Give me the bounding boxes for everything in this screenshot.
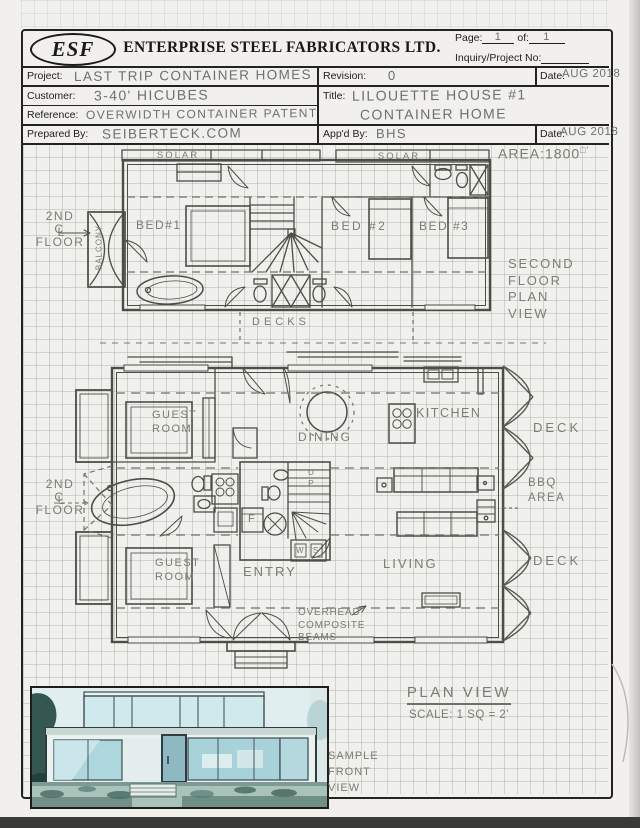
title-value-line2: CONTAINER HOME bbox=[360, 105, 507, 122]
title-value-line1: LILOUETTE HOUSE #1 bbox=[352, 86, 527, 104]
bbq-area-label: BBQ AREA bbox=[528, 476, 565, 506]
centerline-symbol: CL bbox=[54, 223, 65, 236]
fridge-label: F bbox=[248, 513, 256, 525]
prepared-by-label: Prepared By: bbox=[27, 128, 88, 140]
decks-label: DECKS bbox=[252, 316, 310, 328]
plan-view-title: PLAN VIEW bbox=[398, 684, 520, 701]
guest-room-bottom-label: GUEST ROOM bbox=[155, 556, 200, 584]
project-label: Project: bbox=[27, 70, 63, 82]
stairs-up-label: UP bbox=[306, 467, 316, 489]
first-floor-marker: 2ND CL FLOOR bbox=[28, 478, 92, 517]
page-edge-curl bbox=[612, 664, 628, 762]
solar-label-right: SOLAR bbox=[368, 151, 430, 162]
plan-scale: SCALE: 1 SQ = 2' bbox=[398, 709, 520, 721]
guest-room-top-label: GUEST ROOM bbox=[152, 408, 197, 436]
date-value: AUG 2018 bbox=[562, 68, 621, 81]
second-floor-caption: SECOND FLOOR PLAN VIEW bbox=[508, 256, 574, 322]
esf-logo-text: ESF bbox=[52, 37, 95, 61]
container-house-photo-art bbox=[32, 688, 327, 807]
beams-note: OVERHEAD COMPOSITE BEAMS bbox=[298, 607, 365, 645]
date2-value: AUG 2018 bbox=[560, 126, 619, 139]
page-line: Page:1 of:1 bbox=[455, 31, 565, 44]
bed1-label: BED#1 bbox=[136, 218, 182, 232]
prepared-by-value: SEIBERTECK.COM bbox=[102, 125, 242, 141]
balcony-label: BALCONY bbox=[95, 211, 104, 285]
sample-front-view-label: SAMPLE FRONT VIEW bbox=[328, 748, 379, 796]
bed3-label: BED #3 bbox=[419, 219, 469, 233]
titleblock-line bbox=[22, 66, 609, 68]
company-name: ENTERPRISE STEEL FABRICATORS LTD. bbox=[118, 39, 446, 57]
title-label: Title: bbox=[323, 90, 345, 102]
kitchen-label: KITCHEN bbox=[416, 406, 481, 420]
reference-value: OVERWIDTH CONTAINER PATENT bbox=[86, 106, 318, 122]
solar-label-left: SOLAR bbox=[146, 150, 210, 161]
titleblock-divider bbox=[535, 66, 537, 85]
living-label: LIVING bbox=[383, 556, 438, 571]
esf-logo: ESF bbox=[30, 33, 116, 66]
dining-label: DINING bbox=[298, 430, 352, 444]
titleblock-divider bbox=[535, 124, 537, 143]
page-right-edge bbox=[629, 0, 640, 828]
page-total-value: 1 bbox=[543, 31, 551, 43]
area-value: AREA:1800 bbox=[498, 146, 580, 162]
page-value: 1 bbox=[495, 31, 503, 43]
approved-by-label: App'd By: bbox=[323, 128, 368, 140]
sample-front-view-photo bbox=[30, 686, 329, 809]
drawing-sheet: ESF ENTERPRISE STEEL FABRICATORS LTD. Pa… bbox=[0, 0, 640, 828]
titleblock-line bbox=[22, 124, 609, 126]
washer-label: W bbox=[296, 546, 305, 555]
page-label: Page: bbox=[455, 32, 482, 44]
customer-value: 3-40' HICUBES bbox=[94, 86, 209, 103]
of-label: of: bbox=[517, 32, 529, 44]
sink-label: S bbox=[313, 546, 320, 555]
deck-lower-label: DECK bbox=[533, 553, 581, 568]
approved-by-value: BHS bbox=[376, 126, 407, 141]
bed2-label: BED #2 bbox=[331, 219, 387, 233]
inquiry-label: Inquiry/Project No: bbox=[455, 52, 541, 64]
area-note: AREA:1800□' bbox=[498, 145, 589, 162]
revision-label: Revision: bbox=[323, 70, 366, 82]
revision-value: 0 bbox=[388, 68, 397, 83]
centerline-symbol: CL bbox=[54, 491, 65, 504]
top-margin-grid bbox=[21, 0, 609, 28]
customer-label: Customer: bbox=[27, 90, 75, 102]
marker-2nd: 2ND bbox=[46, 209, 75, 223]
inquiry-line: Inquiry/Project No: bbox=[455, 51, 589, 64]
reference-label: Reference: bbox=[27, 109, 78, 121]
area-unit: □' bbox=[580, 145, 589, 155]
deck-upper-label: DECK bbox=[533, 420, 581, 435]
second-floor-marker: 2ND CL FLOOR bbox=[28, 210, 92, 249]
project-value: LAST TRIP CONTAINER HOMES bbox=[74, 67, 312, 84]
scan-bottom-edge bbox=[0, 817, 640, 828]
entry-label: ENTRY bbox=[243, 564, 297, 579]
